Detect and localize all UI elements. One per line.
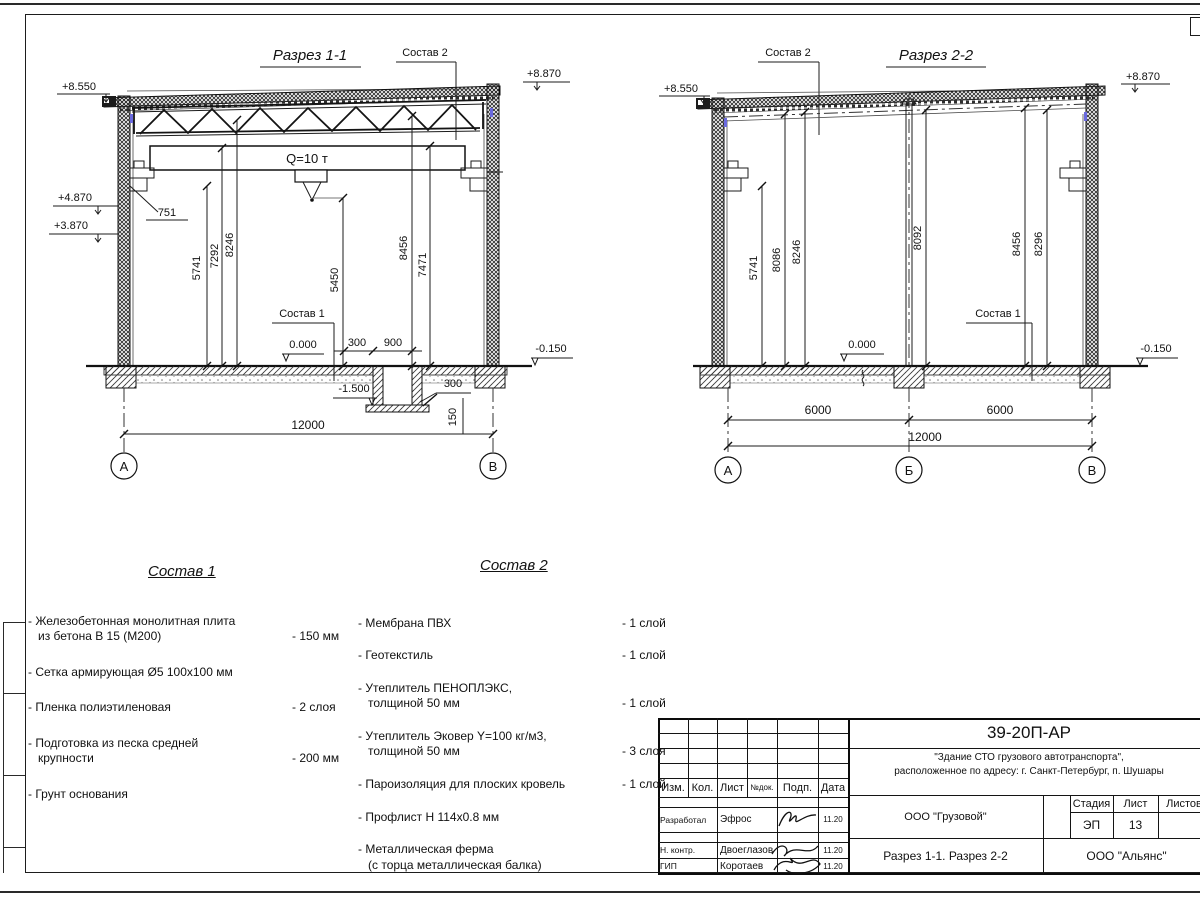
elev-minus-1500: -1.500: [338, 383, 369, 395]
pit: [366, 366, 429, 412]
sheets-label: Листов: [1158, 795, 1200, 812]
col-header-data: Дата: [818, 778, 848, 797]
margin-box-line: [3, 622, 4, 873]
customer-org: ООО "Грузовой": [848, 795, 1043, 838]
item-name: - Утеплитель ПЕНОПЛЭКС, толщиной 50 мм: [358, 681, 616, 712]
list-item: - Подготовка из песка средней крупности …: [28, 736, 373, 767]
sostav1-title: Состав 1: [148, 562, 373, 582]
dim-6000-1: 6000: [805, 403, 832, 417]
elev-8870: +8.870: [1126, 71, 1160, 83]
item-name: - Пленка полиэтиленовая: [28, 700, 286, 716]
row-role: Н. контр.: [660, 842, 717, 858]
col-header-podp: Подп.: [777, 778, 818, 797]
axis-label-a: А: [724, 463, 733, 478]
foundation-right: [475, 366, 505, 388]
dim-5741: 5741: [748, 256, 760, 280]
floor: [693, 366, 1148, 388]
elev-minus-0150: -0.150: [1140, 343, 1171, 355]
elev-4870: +4.870: [58, 192, 92, 204]
item-value: - 1 слой: [622, 648, 666, 664]
sostav2-list: Состав 2 - Мембрана ПВХ - 1 слой - Геоте…: [358, 556, 678, 893]
dim-8246: 8246: [791, 240, 803, 264]
wall-left: [712, 98, 724, 366]
item-name: - Утеплитель Эковер Y=100 кг/м3, толщино…: [358, 729, 616, 760]
title-block: Изм. Кол. Лист №док. Подп. Дата Разработ…: [658, 718, 1200, 875]
sheet-label: Лист: [1113, 795, 1158, 812]
row-name: Эфрос: [720, 807, 777, 832]
crane-capacity-label: Q=10 т: [286, 151, 328, 166]
margin-box-line: [3, 775, 25, 776]
wall-left: [118, 96, 130, 366]
drawing-sheet: Разрез 1-1 Состав 2: [0, 0, 1200, 900]
joint-mark: [724, 118, 727, 127]
col-header-list: Лист: [717, 778, 747, 797]
dim-300: 300: [348, 337, 366, 349]
sheet-number: 13: [1113, 812, 1158, 838]
sostav1-callout: Состав 1: [279, 308, 325, 320]
item-name: - Металлическая ферма (с торца металличе…: [358, 842, 616, 873]
signature: [766, 836, 826, 876]
item-value: - 1 слой: [622, 616, 666, 632]
item-name: - Сетка армирующая Ø5 100х100 мм: [28, 665, 286, 681]
stage-label: Стадия: [1070, 795, 1113, 812]
foundation-left: [700, 366, 730, 388]
axis-label-a: А: [120, 459, 129, 474]
elev-8550: +8.550: [664, 83, 698, 95]
margin-box-line: [3, 847, 25, 848]
dim-8092: 8092: [912, 226, 924, 250]
margin-box-line: [3, 693, 25, 694]
axis-label-b: Б: [905, 463, 914, 478]
design-org: ООО "Альянс": [1043, 838, 1200, 874]
item-name: - Грунт основания: [28, 787, 286, 803]
elev-0000: 0.000: [289, 339, 317, 351]
floor: [86, 366, 532, 388]
dim-12000: 12000: [291, 418, 325, 432]
item-name: - Профлист Н 114х0.8 мм: [358, 810, 616, 826]
crane-corbels: [724, 161, 1086, 191]
item-name: - Геотекстиль: [358, 648, 616, 664]
list-item: - Сетка армирующая Ø5 100х100 мм: [28, 665, 373, 681]
dim-751: 751: [158, 207, 176, 219]
signature: [776, 806, 820, 832]
item-value: - 1 слой: [622, 696, 666, 712]
dim-12000: 12000: [908, 430, 942, 444]
elev-8870: +8.870: [527, 68, 561, 80]
list-item: - Пароизоляция для плоских кровель - 1 с…: [358, 777, 678, 793]
dim-8456: 8456: [398, 236, 410, 260]
item-name: - Железобетонная монолитная плита из бет…: [28, 614, 286, 645]
col-header-kol: Кол.: [688, 778, 717, 797]
list-item: - Пленка полиэтиленовая - 2 слоя: [28, 700, 373, 716]
foundation-middle: [894, 366, 924, 388]
axes: 6000 6000 12000 А Б В: [715, 388, 1105, 483]
list-item: - Грунт основания: [28, 787, 373, 803]
section2-title: Разрез 2-2: [899, 47, 974, 64]
project-description-line2: расположенное по адресу: г. Санкт-Петерб…: [848, 765, 1200, 779]
col-header-izm: Изм.: [658, 778, 688, 797]
elev-0000: 0.000: [848, 339, 876, 351]
elev-3870: +3.870: [54, 220, 88, 232]
elev-8550: +8.550: [62, 81, 96, 93]
dim-7292: 7292: [209, 244, 221, 268]
sostav2-callout: Состав 2: [765, 47, 811, 59]
crane-trolley: [295, 170, 327, 182]
sostav2-callout: Состав 2: [402, 47, 448, 59]
crane-hook: [310, 198, 314, 202]
dim-8456: 8456: [1011, 232, 1023, 256]
joint-mark: [1084, 112, 1087, 121]
axes: 12000 А В: [111, 388, 506, 479]
section-1-1: Разрез 1-1 Состав 2: [49, 47, 573, 479]
joint-mark: [490, 108, 493, 117]
project-description-line1: "Здание СТО грузового автотранспорта",: [848, 751, 1200, 765]
axis-label-v: В: [1088, 463, 1097, 478]
item-value: - 200 мм: [292, 751, 339, 767]
sostav2-title: Состав 2: [480, 556, 678, 576]
dim-5450: 5450: [329, 268, 341, 292]
sections-drawing: Разрез 1-1 Состав 2: [0, 0, 1200, 560]
foundation-left: [106, 366, 136, 388]
col-header-ndok: №док.: [747, 778, 777, 797]
list-item: - Железобетонная монолитная плита из бет…: [28, 614, 373, 645]
vertical-dimensions: 5741 8086 8246 8092 8456 8296: [748, 104, 1051, 370]
margin-box-line: [3, 622, 25, 623]
dim-5741: 5741: [191, 256, 203, 280]
dim-8296: 8296: [1033, 232, 1045, 256]
list-item: - Профлист Н 114х0.8 мм: [358, 810, 678, 826]
dim-7471: 7471: [417, 253, 429, 277]
list-item: - Металлическая ферма (с торца металличе…: [358, 842, 678, 873]
dim-8086: 8086: [771, 248, 783, 272]
list-item: - Утеплитель ПЕНОПЛЭКС, толщиной 50 мм -…: [358, 681, 678, 712]
item-name: - Мембрана ПВХ: [358, 616, 616, 632]
dim-8246: 8246: [224, 233, 236, 257]
section1-title: Разрез 1-1: [273, 47, 347, 64]
elev-minus-0150: -0.150: [535, 343, 566, 355]
row-role: Разработал: [660, 807, 717, 832]
row-role: ГИП: [660, 858, 717, 874]
section-2-2: Разрез 2-2 Состав 2: [659, 47, 1178, 483]
row-date: 11.20: [818, 807, 848, 832]
dim-6000-2: 6000: [987, 403, 1014, 417]
dim-pit-wall-300: 300: [444, 378, 462, 390]
dim-150: 150: [447, 408, 459, 426]
wall-right: [1086, 84, 1098, 366]
dim-900: 900: [384, 337, 402, 349]
item-value: - 150 мм: [292, 629, 339, 645]
sostav1-list: Состав 1 - Железобетонная монолитная пли…: [28, 562, 373, 823]
item-value: - 2 слоя: [292, 700, 336, 716]
list-item: - Мембрана ПВХ - 1 слой: [358, 616, 678, 632]
stage-value: ЭП: [1070, 812, 1113, 838]
doc-number: 39-20П-АР: [848, 718, 1200, 748]
joint-mark: [130, 114, 133, 123]
list-item: - Геотекстиль - 1 слой: [358, 648, 678, 664]
item-name: - Пароизоляция для плоских кровель: [358, 777, 616, 793]
foundation-right: [1080, 366, 1110, 388]
wall-right: [487, 84, 499, 366]
sostav1-callout: Состав 1: [975, 308, 1021, 320]
list-item: - Утеплитель Эковер Y=100 кг/м3, толщино…: [358, 729, 678, 760]
sheet-title: Разрез 1-1. Разрез 2-2: [848, 838, 1043, 874]
axis-label-b: В: [489, 459, 498, 474]
item-name: - Подготовка из песка средней крупности: [28, 736, 286, 767]
